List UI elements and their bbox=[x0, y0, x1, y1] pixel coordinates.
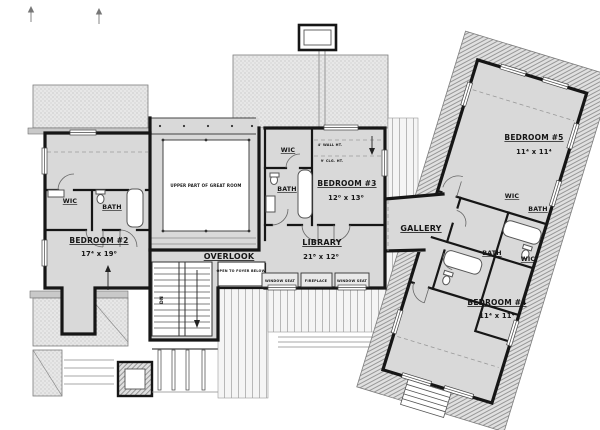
floor-plan-drawing: BEDROOM #2 17⁴ x 19⁰ WIC BATH OVERLOOK U… bbox=[0, 0, 600, 430]
room-label-bedroom5: BEDROOM #5 bbox=[504, 133, 563, 142]
porch-posts bbox=[152, 349, 218, 392]
wic-label: WIC bbox=[521, 256, 536, 263]
bathtub bbox=[298, 170, 312, 218]
window-seat-label: WINDOW SEAT bbox=[337, 279, 368, 283]
room-label-overlook: OVERLOOK bbox=[204, 252, 255, 261]
fireplace-label: FIREPLACE bbox=[305, 279, 328, 283]
sink-vanity bbox=[48, 190, 64, 197]
open-to-foyer-note: OPEN TO FOYER BELOW bbox=[216, 269, 265, 273]
bath-label: BATH bbox=[277, 186, 297, 193]
bathtub bbox=[127, 189, 143, 227]
open-to-foyer-void bbox=[218, 262, 265, 286]
wic-label: WIC bbox=[63, 198, 78, 205]
wic-label: WIC bbox=[281, 147, 296, 154]
toilet bbox=[97, 195, 104, 204]
roof-top-center bbox=[233, 25, 388, 128]
room-label-library: LIBRARY bbox=[302, 238, 341, 247]
room-dims-bedroom4: 11⁴ x 11⁴ bbox=[479, 312, 515, 320]
room-label-bedroom3: BEDROOM #3 bbox=[317, 179, 376, 188]
room-label-bedroom4: BEDROOM #4 bbox=[467, 298, 526, 307]
room-dims-bedroom3: 12⁰ x 13⁰ bbox=[328, 194, 364, 202]
bath-label: BATH bbox=[102, 204, 122, 211]
bath-label: BATH bbox=[528, 206, 548, 213]
room-label-bedroom2: BEDROOM #2 bbox=[69, 236, 128, 245]
room-label-gallery: GALLERY bbox=[400, 224, 441, 233]
chimney bbox=[299, 25, 336, 50]
roof-top-left bbox=[28, 85, 154, 134]
ceiling-height-note: 9' CLG. HT. bbox=[321, 159, 344, 163]
sink-vanity bbox=[266, 196, 275, 212]
down-label: DN bbox=[159, 296, 165, 304]
room-dims-library: 21⁸ x 12⁰ bbox=[303, 253, 339, 261]
room-dims-bedroom2: 17⁴ x 19⁰ bbox=[81, 250, 117, 258]
wic-label: WIC bbox=[505, 193, 520, 200]
upper-great-room-note: UPPER PART OF GREAT ROOM bbox=[170, 183, 241, 188]
wall-height-note: 4' WALL HT. bbox=[318, 143, 342, 147]
bath-label: BATH bbox=[482, 250, 502, 257]
window-seat-label: WINDOW SEAT bbox=[265, 279, 296, 283]
vent-arrow-icon bbox=[29, 7, 102, 24]
room-dims-bedroom5: 11⁴ x 11⁴ bbox=[516, 148, 552, 156]
